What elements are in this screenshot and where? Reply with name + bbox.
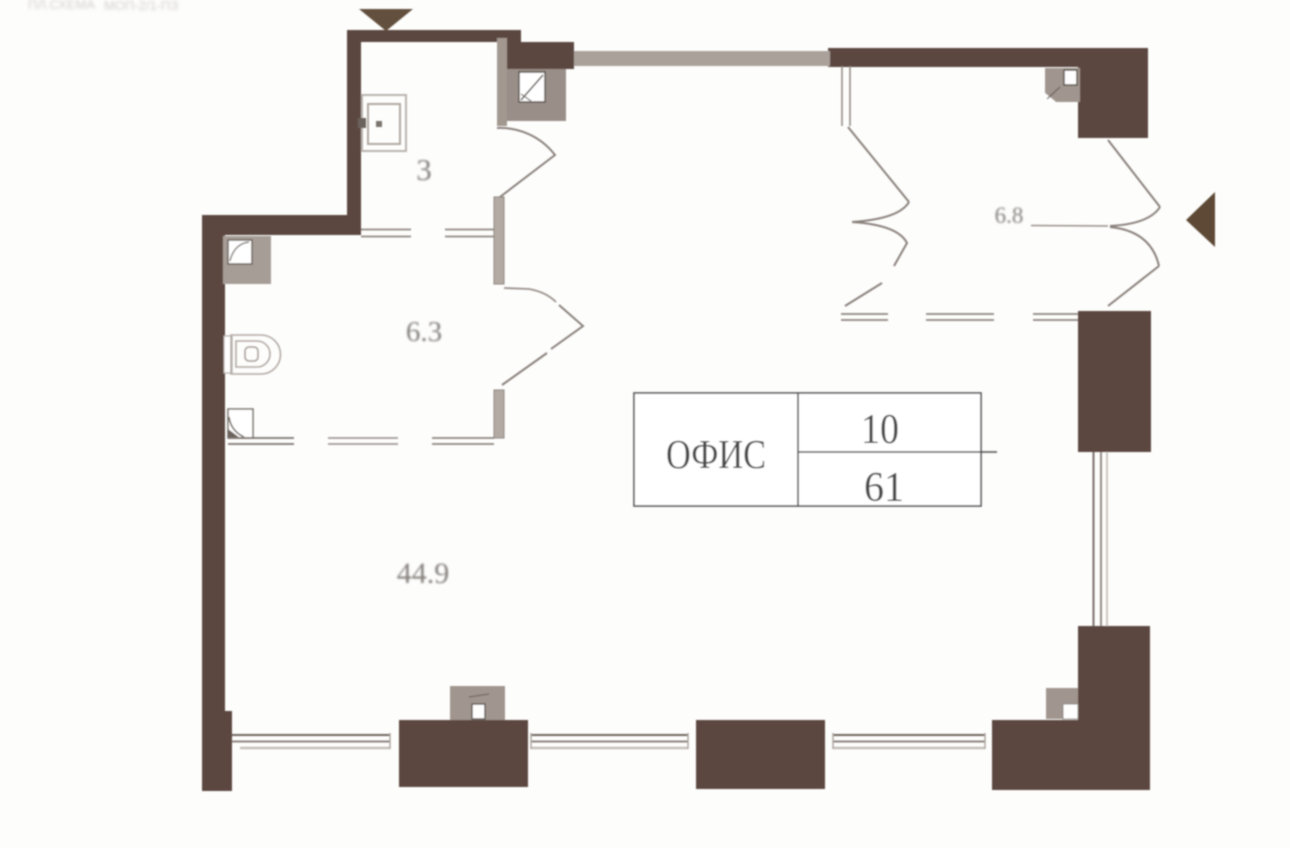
- svg-text:ОФИС: ОФИС: [666, 431, 766, 477]
- svg-text:10: 10: [861, 407, 899, 453]
- svg-text:6.3: 6.3: [406, 316, 442, 348]
- svg-text:МОП-2/1-ПЗ: МОП-2/1-ПЗ: [104, 0, 178, 13]
- svg-text:61: 61: [864, 465, 904, 511]
- svg-text:44.9: 44.9: [397, 557, 450, 590]
- svg-text:3: 3: [416, 152, 432, 187]
- svg-text:ПЛ.СХЕМА: ПЛ.СХЕМА: [28, 0, 95, 12]
- svg-text:6.8: 6.8: [995, 203, 1024, 228]
